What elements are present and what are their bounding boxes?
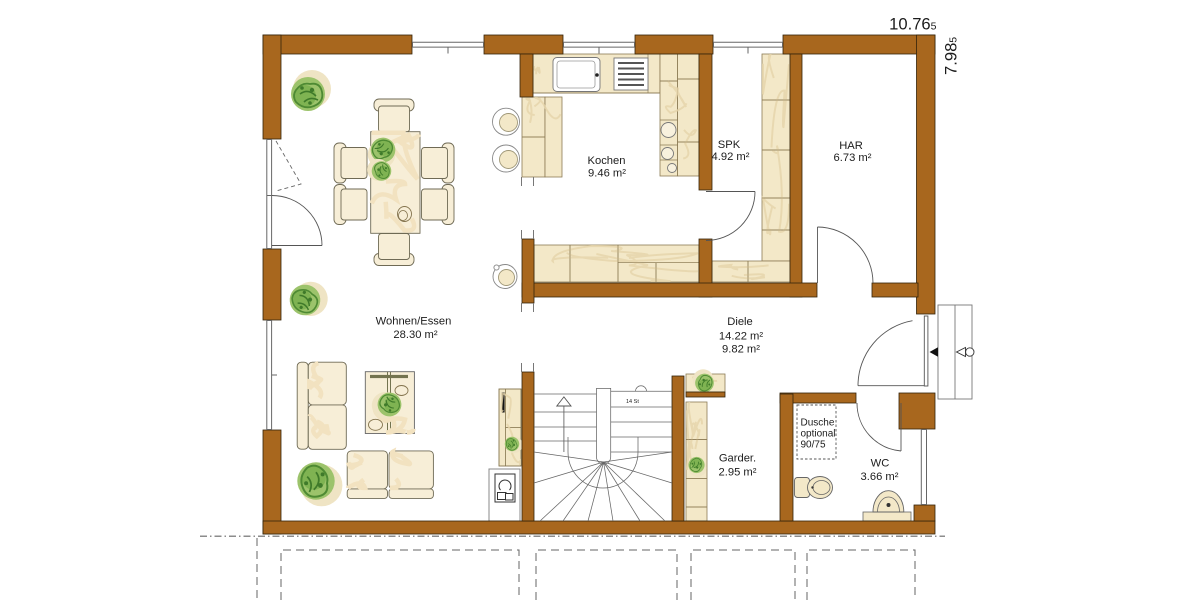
svg-text:optional: optional [801, 429, 836, 440]
svg-text:14.22 m²: 14.22 m² [719, 331, 763, 343]
svg-text:14 St: 14 St [626, 399, 639, 405]
svg-text:10.765: 10.765 [889, 15, 937, 34]
svg-text:3.66 m²: 3.66 m² [861, 471, 899, 483]
svg-text:Kochen: Kochen [588, 155, 626, 167]
svg-text:28.30 m²: 28.30 m² [393, 329, 437, 341]
svg-text:9.82 m²: 9.82 m² [722, 344, 760, 356]
svg-text:6.73 m²: 6.73 m² [834, 152, 872, 164]
svg-text:Garder.: Garder. [719, 453, 756, 465]
svg-text:HAR: HAR [839, 140, 863, 152]
svg-text:Wohnen/Essen: Wohnen/Essen [376, 316, 452, 328]
svg-text:9.46 m²: 9.46 m² [588, 168, 626, 180]
svg-text:2.95 m²: 2.95 m² [719, 467, 757, 479]
svg-text:WC: WC [871, 458, 890, 470]
svg-text:SPK: SPK [718, 139, 741, 151]
svg-text:90/75: 90/75 [801, 440, 826, 451]
svg-text:Dusche: Dusche [801, 418, 835, 429]
svg-text:Diele: Diele [727, 316, 753, 328]
svg-text:4.92 m²: 4.92 m² [712, 151, 750, 163]
